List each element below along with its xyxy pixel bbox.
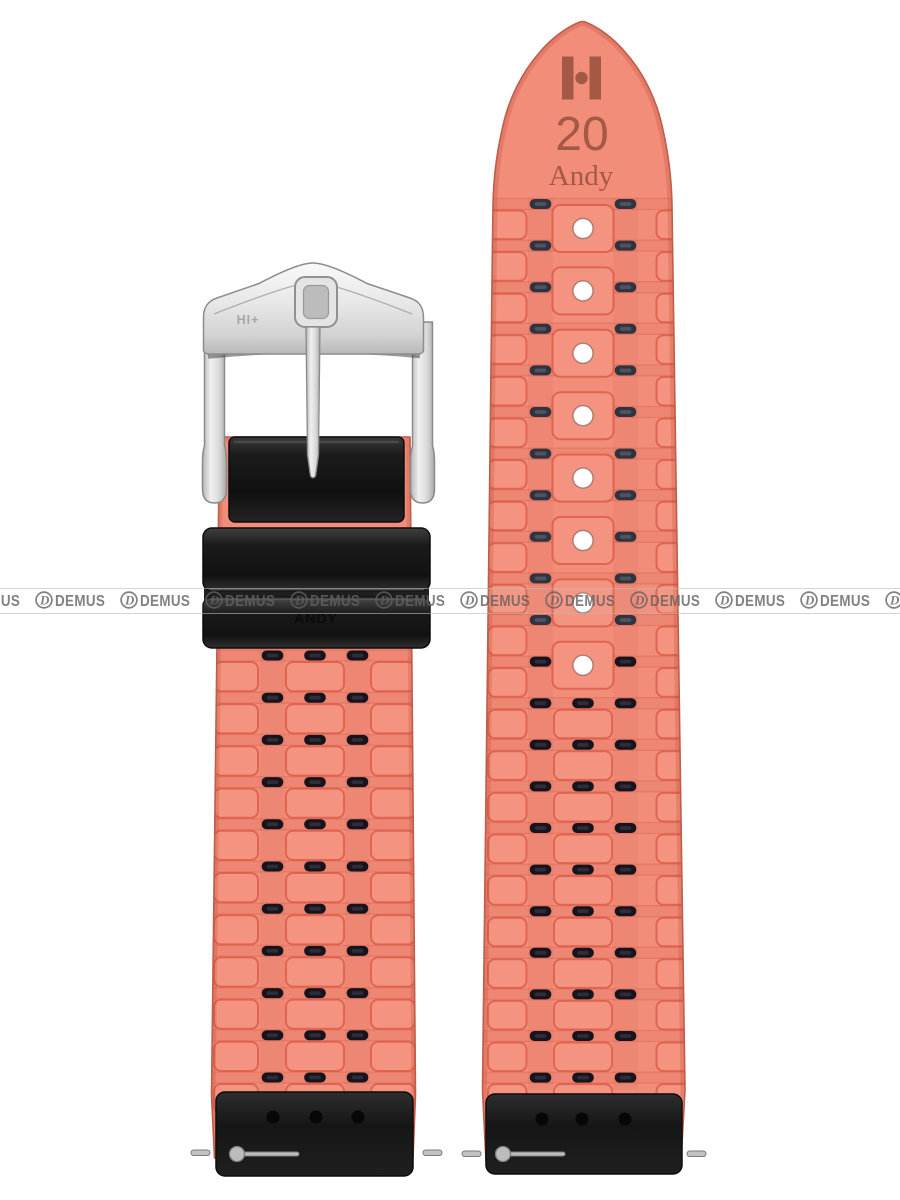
svg-text:D: D [634, 593, 645, 608]
svg-text:D: D [294, 593, 305, 608]
svg-text:D: D [39, 593, 50, 608]
svg-text:D: D [549, 593, 560, 608]
svg-text:D: D [209, 593, 220, 608]
svg-text:D: D [804, 593, 815, 608]
svg-text:D: D [719, 593, 730, 608]
svg-text:D: D [124, 593, 135, 608]
svg-text:D: D [889, 593, 900, 608]
svg-text:D: D [464, 593, 475, 608]
svg-text:D: D [379, 593, 390, 608]
